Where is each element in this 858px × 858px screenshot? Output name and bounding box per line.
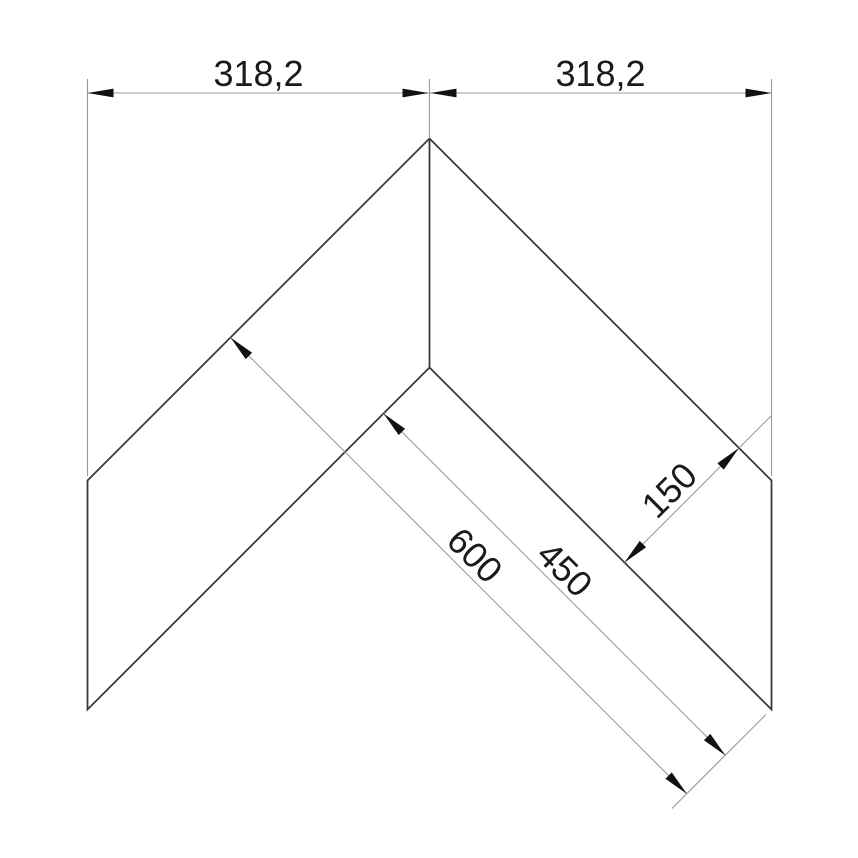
arrow-top-center-left xyxy=(431,89,457,98)
arrow-top-right-out xyxy=(746,89,772,98)
dimension-label-150: 150 xyxy=(633,454,704,525)
arrow-150-lower xyxy=(625,541,647,563)
arrow-600-end xyxy=(665,772,687,794)
dimension-label-318-2-right: 318,2 xyxy=(555,53,645,94)
arrow-450-end xyxy=(704,734,726,756)
drawing-canvas: 318,2 318,2 600 450 150 xyxy=(0,0,858,858)
dimension-label-318-2-left: 318,2 xyxy=(213,53,303,94)
technical-drawing: 318,2 318,2 600 450 150 xyxy=(0,0,858,858)
arrow-top-center-right xyxy=(403,89,429,98)
arrow-600-start xyxy=(231,338,253,360)
dimension-label-450: 450 xyxy=(529,533,600,604)
arrow-450-start xyxy=(384,414,406,436)
arrow-150-upper xyxy=(717,448,739,470)
arrow-top-left-out xyxy=(88,89,114,98)
extension-line-bottom-right xyxy=(672,715,766,809)
